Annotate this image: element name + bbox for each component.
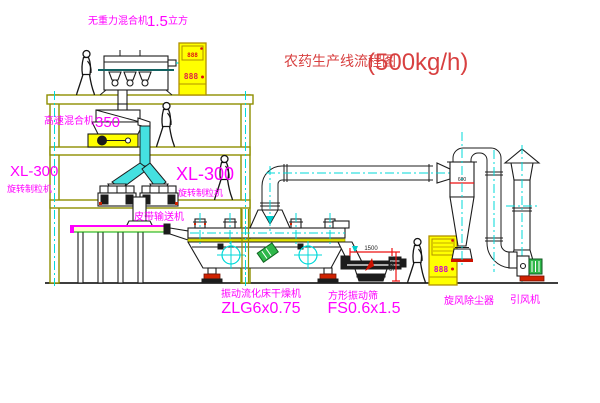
conveyor-leg [98, 232, 103, 283]
gravity-mixer-label: 无重力混合机 [88, 14, 148, 27]
indicator-light [201, 76, 204, 79]
process-flow-diagram: 888 888 [0, 0, 600, 403]
floor-slab-top [47, 95, 253, 104]
cyclone-label: 旋风除尘器 [444, 294, 494, 307]
high-speed-mixer-size: 350 [95, 114, 120, 131]
granulator-left-machine [98, 186, 136, 206]
dimension-text: 1500 [364, 246, 378, 252]
conveyor-leg [138, 232, 143, 283]
gravity-mixer-unit: 立方 [168, 14, 188, 27]
belt-conveyor-label: 皮带输送机 [134, 210, 184, 223]
conveyor-head-pulley [164, 224, 170, 234]
down-duct [140, 126, 150, 166]
conveyor-tail [70, 225, 74, 233]
fan-base [520, 276, 544, 281]
indicator-light [451, 239, 454, 242]
granulator-left-label: 旋转制粒机 [7, 183, 52, 194]
panel-display: 888 [434, 265, 449, 274]
panel-lower-display: 888 [184, 72, 199, 81]
indicator-light [200, 47, 203, 50]
diagram-title-capacity: (500kg/h) [367, 49, 468, 76]
dimension-text: 580 [390, 260, 396, 271]
granulator-detail [99, 202, 102, 205]
control-cabinet [179, 43, 206, 95]
indicator-light [451, 268, 454, 271]
vibrating-screen-model: FS0.6x1.5 [328, 300, 401, 317]
control-panel-top: 888 888 [179, 43, 206, 95]
mixer-valves [109, 72, 151, 86]
granulator-left-model: XL-300 [10, 163, 58, 180]
conveyor-leg [78, 232, 83, 283]
granulator-right-model: XL-300 [176, 164, 234, 184]
panel-upper-display: 888 [187, 52, 198, 59]
high-speed-mixer-label: 高速混合机 [44, 114, 94, 127]
fan-label: 引风机 [510, 293, 540, 306]
granulator-detail [175, 202, 178, 205]
screen-outlet [400, 259, 406, 267]
granulator-right-label: 旋转制粒机 [178, 187, 223, 198]
fluid-bed-label: 振动流化床干燥机 [221, 287, 301, 300]
fluid-bed-model: ZLG6x0.75 [221, 300, 300, 317]
conveyor-leg [118, 232, 123, 283]
gravity-mixer-size: 1.5 [147, 13, 168, 30]
